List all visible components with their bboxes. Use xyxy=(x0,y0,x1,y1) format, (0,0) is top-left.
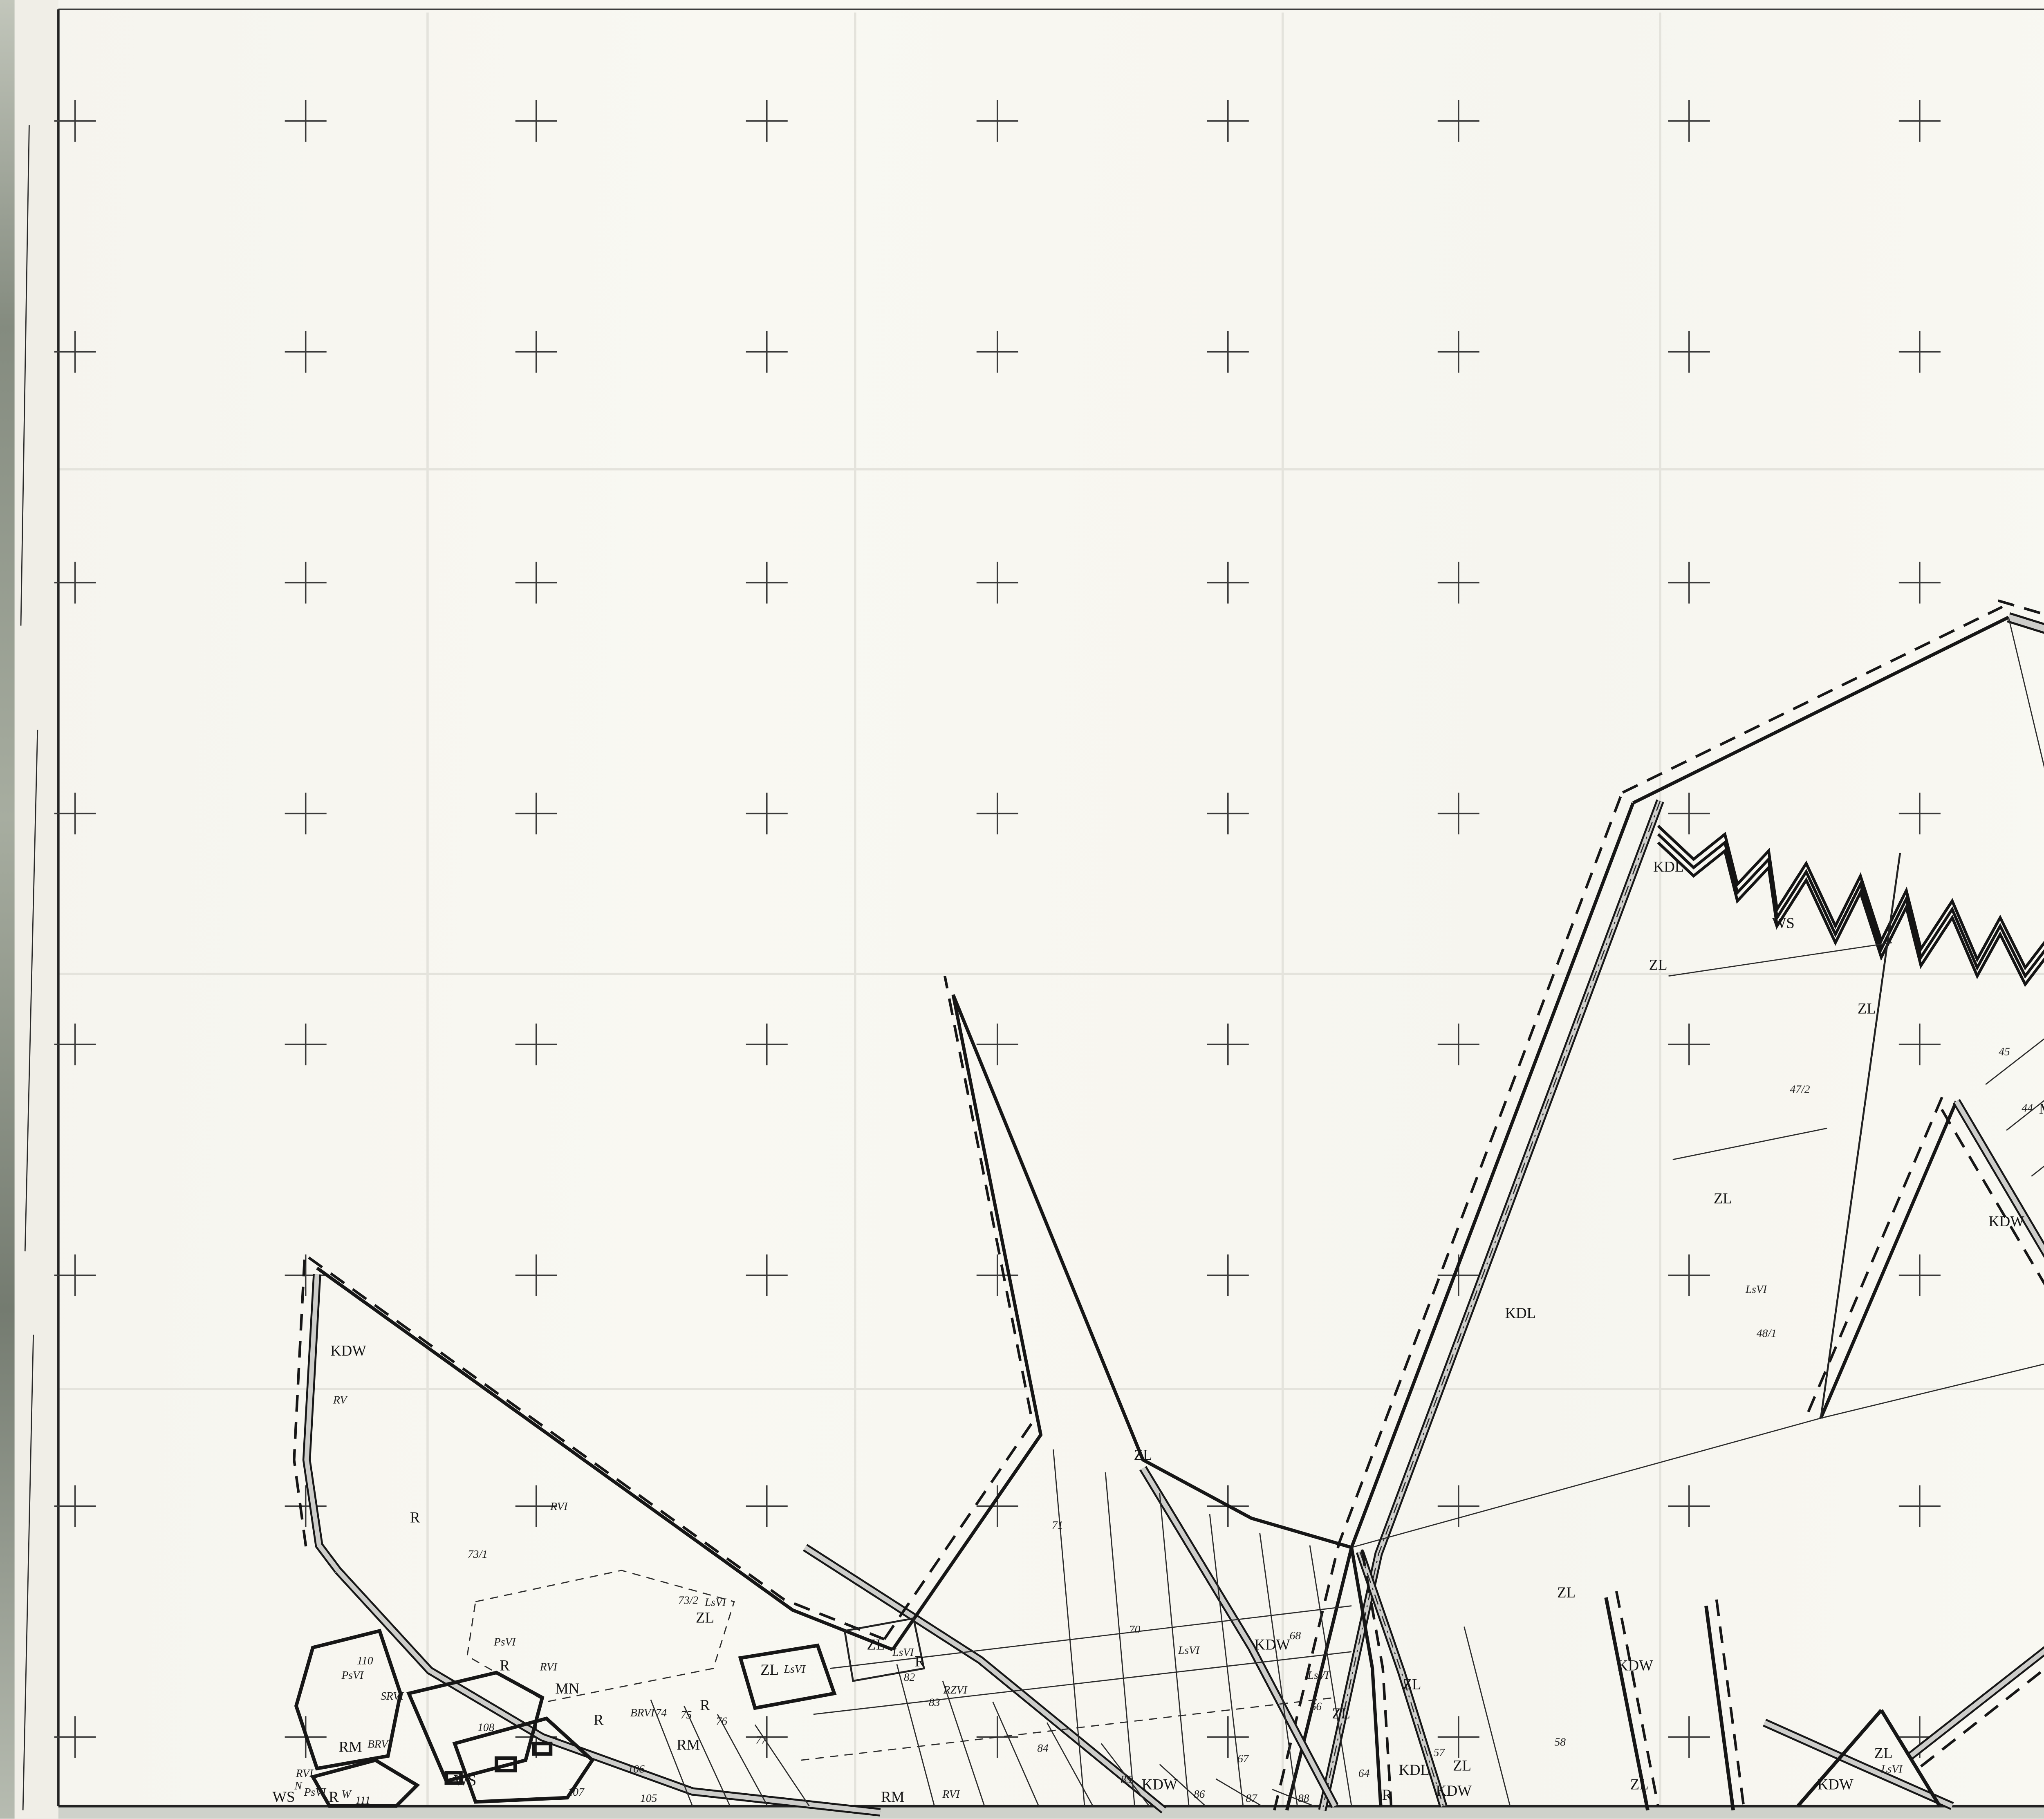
annotation-layer: MIEJSCOWY PLAN ZAGOSPODAROWANIA PRZESTRZ… xyxy=(0,0,2044,1819)
scanned-plan-sheet: 022060100200m ZL2KDWKDLZLKDL3RRVI4LsVIZL… xyxy=(0,0,2044,1819)
